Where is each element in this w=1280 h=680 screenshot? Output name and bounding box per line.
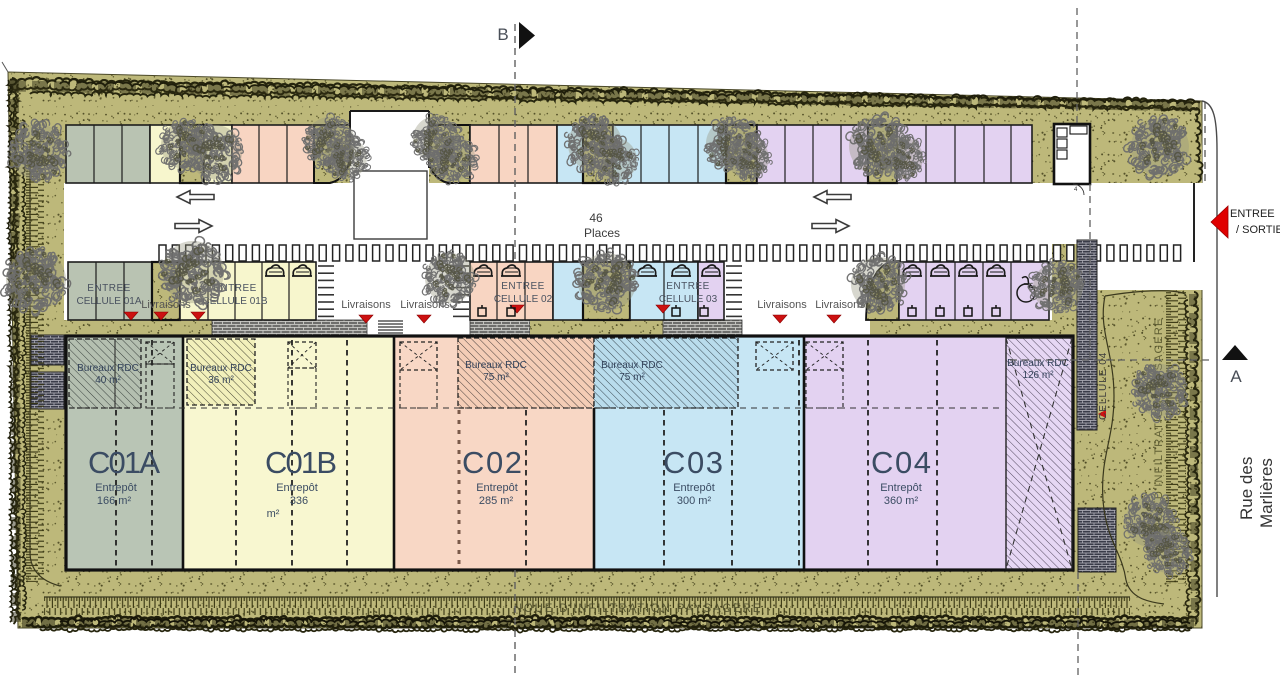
svg-text:C02: C02 [462, 445, 522, 480]
svg-text:360 m²: 360 m² [884, 495, 919, 507]
svg-text:36 m²: 36 m² [208, 375, 234, 386]
svg-text:C01B: C01B [265, 445, 337, 480]
svg-text:Entrepôt: Entrepôt [276, 482, 318, 494]
svg-text:Bureaux RDC: Bureaux RDC [465, 360, 527, 371]
svg-text:CELLULE 02: CELLULE 02 [494, 294, 553, 305]
svg-text:126 m²: 126 m² [1022, 370, 1054, 381]
svg-text:/ SORTIE: / SORTIE [1236, 224, 1280, 236]
svg-text:B: B [497, 25, 508, 44]
svg-text:Rue des: Rue des [1237, 457, 1256, 520]
svg-text:C04: C04 [871, 445, 931, 480]
svg-text:46: 46 [589, 211, 603, 225]
svg-text:Marlières: Marlières [1257, 458, 1276, 528]
svg-text:NOUE D'INFILTRATION PAYSAGERE: NOUE D'INFILTRATION PAYSAGERE [514, 603, 762, 615]
svg-text:ENTREE: ENTREE [501, 281, 545, 292]
svg-text:336: 336 [290, 495, 308, 507]
svg-text:75 m²: 75 m² [483, 372, 509, 383]
svg-text:Bureaux RDC: Bureaux RDC [601, 360, 663, 371]
svg-text:Places: Places [584, 226, 620, 240]
svg-text:CELLULE 01A: CELLULE 01A [76, 296, 141, 307]
svg-text:CELLULE 04: CELLULE 04 [1098, 352, 1109, 420]
svg-text:Entrepôt: Entrepôt [476, 482, 518, 494]
svg-text:Bureaux RDC: Bureaux RDC [190, 363, 252, 374]
svg-text:C03: C03 [663, 445, 723, 480]
svg-text:Livraisons: Livraisons [341, 299, 391, 311]
svg-text:ENTREE: ENTREE [87, 283, 131, 294]
svg-text:Entrepôt: Entrepôt [95, 482, 137, 494]
svg-text:Livraisons: Livraisons [757, 299, 807, 311]
svg-text:40 m²: 40 m² [95, 375, 121, 386]
svg-text:75 m²: 75 m² [619, 372, 645, 383]
svg-text:300 m²: 300 m² [677, 495, 712, 507]
svg-text:Bureaux RDC: Bureaux RDC [77, 363, 139, 374]
svg-text:m²: m² [267, 508, 280, 520]
svg-text:CELLULE 03: CELLULE 03 [659, 294, 718, 305]
svg-text:Entrepôt: Entrepôt [673, 482, 715, 494]
svg-text:ENTREE: ENTREE [666, 281, 710, 292]
svg-text:A: A [1230, 367, 1242, 386]
svg-text:285 m²: 285 m² [479, 495, 514, 507]
svg-text:166 m²: 166 m² [97, 495, 132, 507]
svg-text:ENTREE: ENTREE [1230, 208, 1275, 220]
svg-text:Entrepôt: Entrepôt [880, 482, 922, 494]
svg-text:C01A: C01A [88, 445, 160, 480]
